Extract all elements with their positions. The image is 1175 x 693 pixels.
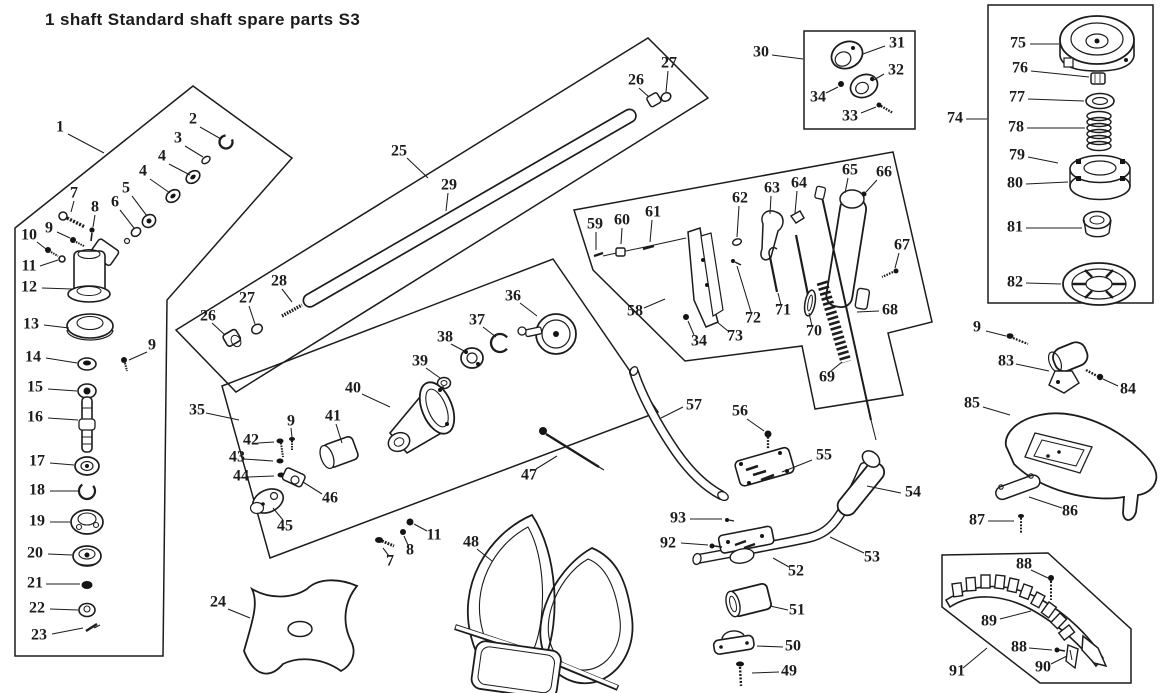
- part-label-88-101: 88: [1011, 639, 1027, 656]
- head-75-tab: [1064, 58, 1073, 67]
- part-label-33-54: 33: [842, 108, 858, 125]
- part-label-83-94: 83: [998, 353, 1014, 370]
- part-label-61-59: 61: [645, 204, 661, 221]
- leader-88-101: [1029, 648, 1052, 650]
- parts-diagram-page: 1 shaft Standard shaft spare parts S3 12…: [0, 0, 1175, 693]
- leader-28-29: [282, 289, 292, 302]
- part-label-38-36: 38: [437, 329, 453, 346]
- guard-85: [1006, 413, 1157, 520]
- joint-45-dot: [261, 502, 265, 506]
- washer-20-dot: [85, 553, 90, 558]
- part-label-71-69: 71: [775, 302, 791, 319]
- leader-47-49: [536, 456, 557, 469]
- hook-64: [791, 211, 804, 223]
- part-label-66-64: 66: [876, 164, 892, 181]
- screw-42-shaft: [281, 443, 283, 457]
- leader-5-5: [132, 196, 147, 216]
- leader-4-4: [150, 179, 170, 193]
- part-label-70-68: 70: [806, 323, 822, 340]
- leader-90-102: [1051, 656, 1067, 664]
- clamp-83-base: [1049, 371, 1079, 393]
- part-label-8-8: 8: [91, 199, 99, 216]
- screw-87-head: [1018, 514, 1024, 518]
- part-label-27-28: 27: [661, 55, 677, 72]
- part-label-49-83: 49: [781, 663, 797, 680]
- screw-56-head: [765, 431, 772, 438]
- leader-25-26: [407, 158, 428, 178]
- part-label-48-50: 48: [463, 534, 479, 551]
- bracket-52-h2: [760, 534, 764, 538]
- leader-72-70: [737, 266, 751, 312]
- part-label-51-81: 51: [789, 602, 805, 619]
- leader-49-83: [752, 672, 779, 673]
- leader-50-82: [757, 646, 783, 647]
- part-label-45-44: 45: [277, 518, 293, 535]
- part-label-76-86: 76: [1012, 60, 1028, 77]
- grip-65-cap: [840, 190, 864, 208]
- clip-90: [1066, 645, 1078, 668]
- gear-6: [130, 226, 143, 238]
- part-label-89-100: 89: [981, 613, 997, 630]
- part-label-75-85: 75: [1010, 35, 1026, 52]
- leader-88-99: [1031, 570, 1048, 578]
- pin-47-head: [539, 427, 547, 435]
- part-label-41-39: 41: [325, 408, 341, 425]
- leader-82-92: [1026, 283, 1061, 284]
- part-label-57-74: 57: [686, 397, 702, 414]
- screw-88-upper-head: [1048, 575, 1054, 581]
- leader-86-97: [1029, 497, 1062, 508]
- screw-8-shaft: [91, 233, 92, 241]
- part-label-18-18: 18: [29, 482, 45, 499]
- part-label-32-53: 32: [888, 62, 904, 79]
- part-label-56-73: 56: [732, 403, 748, 420]
- part-label-14-14: 14: [25, 349, 41, 366]
- part-label-29-32: 29: [441, 177, 457, 194]
- bearing-17-dot: [85, 464, 89, 468]
- leader-92-80: [681, 543, 708, 545]
- leader-56-73: [747, 419, 764, 431]
- leader-20-20: [48, 554, 72, 555]
- part-label-26-27: 26: [628, 72, 644, 89]
- leader-24-25: [228, 609, 250, 618]
- screw-9-right-shaft: [1013, 338, 1028, 344]
- leader-1-0: [68, 134, 104, 153]
- part-label-21-21: 21: [27, 575, 43, 592]
- clamp-50-h2: [745, 641, 749, 645]
- part-label-34-72: 34: [691, 333, 707, 350]
- rack-89-tooth-3: [981, 575, 990, 588]
- spool-notch-2: [1120, 159, 1125, 164]
- leader-53-77: [830, 537, 864, 553]
- part-label-25-26: 25: [391, 143, 407, 160]
- ball-34-throttle: [683, 314, 689, 320]
- part-label-85-96: 85: [964, 395, 980, 412]
- part-label-9-9: 9: [45, 220, 53, 237]
- part-label-10-10: 10: [21, 227, 37, 244]
- part-label-34-55: 34: [810, 89, 826, 106]
- leader-8-8: [93, 215, 95, 227]
- leader-10-10: [37, 242, 46, 249]
- leader-61-59: [650, 220, 652, 242]
- clamp-31-dot: [851, 46, 855, 50]
- washer-43: [277, 459, 284, 464]
- gearshaft-16-collar: [79, 419, 95, 430]
- leader-60-58: [621, 228, 622, 244]
- screw-9-left-head: [70, 237, 76, 243]
- leader-13-13: [44, 325, 69, 328]
- bolt-92: [710, 544, 715, 549]
- screw-49-head: [736, 662, 744, 667]
- rack-89-tooth-5: [1007, 578, 1019, 593]
- part-label-1-0: 1: [56, 119, 64, 136]
- nut-76: [1091, 73, 1105, 84]
- part-label-73-71: 73: [727, 328, 743, 345]
- throttle-assembly-box: [574, 152, 932, 409]
- part-label-24-25: 24: [210, 594, 226, 611]
- snap-ring-2: [220, 136, 233, 149]
- clutch-drum-36-knob: [518, 327, 526, 335]
- screw-49-shaft: [740, 667, 741, 686]
- ball-34-clamp: [838, 81, 844, 87]
- leader-9-9: [57, 232, 70, 238]
- clamp-32: [847, 70, 882, 102]
- pin-6: [125, 239, 130, 244]
- part-label-87-98: 87: [969, 512, 985, 529]
- part-label-60-58: 60: [614, 212, 630, 229]
- guard-85-d1: [1046, 454, 1050, 458]
- leader-80-90: [1026, 182, 1068, 184]
- gearhead-assembly-box: [15, 86, 292, 656]
- part-label-64-62: 64: [791, 175, 807, 192]
- leader-9-93: [986, 331, 1006, 336]
- nut-21: [82, 581, 93, 589]
- leader-39-37: [426, 368, 440, 378]
- cable-68-top: [815, 186, 826, 200]
- part-label-16-16: 16: [27, 409, 43, 426]
- rod-71: [770, 257, 777, 292]
- pin-62: [732, 238, 743, 247]
- rod-70: [796, 235, 808, 295]
- washer-14-core: [83, 361, 91, 366]
- washer-77: [1086, 94, 1114, 109]
- leader-40-38: [362, 394, 390, 407]
- leader-31-52: [863, 46, 885, 54]
- part-label-93-79: 93: [670, 510, 686, 527]
- clutch-drum-36-hub: [553, 331, 559, 337]
- bearing-38-d2: [476, 362, 480, 366]
- leader-22-22: [50, 609, 78, 610]
- part-label-47-49: 47: [521, 467, 537, 484]
- screw-33-shaft: [881, 106, 893, 113]
- thread-28: [282, 305, 302, 316]
- part-label-4-4: 4: [139, 163, 147, 180]
- part-label-9-93: 9: [973, 319, 981, 336]
- part-label-8-47: 8: [406, 542, 414, 559]
- pin-47-tip: [599, 467, 604, 470]
- part-label-92-80: 92: [660, 535, 676, 552]
- part-label-17-17: 17: [29, 453, 45, 470]
- part-label-15-15: 15: [27, 379, 43, 396]
- part-label-52-78: 52: [788, 563, 804, 580]
- part-label-3-2: 3: [174, 130, 182, 147]
- grip-65-latch: [855, 288, 870, 310]
- fork-46-hole: [291, 476, 299, 484]
- screw-9-right-head: [1007, 333, 1014, 339]
- screw-84-head: [1097, 374, 1103, 380]
- part-label-82-92: 82: [1007, 274, 1023, 291]
- leader-84-95: [1103, 379, 1118, 386]
- joint-45-hole: [271, 493, 278, 500]
- part-label-55-75: 55: [816, 447, 832, 464]
- pin-61: [643, 246, 654, 249]
- clamp-50-h1: [719, 645, 723, 649]
- part-label-27-30: 27: [239, 290, 255, 307]
- leader-9-24: [129, 352, 147, 360]
- screw-9-left-shaft: [76, 242, 84, 246]
- housing-40-b2: [445, 422, 449, 426]
- part-label-67-65: 67: [894, 237, 910, 254]
- leader-17-17: [50, 463, 74, 465]
- part-label-9-40: 9: [287, 413, 295, 430]
- clamp-83-dot: [1056, 380, 1060, 384]
- leader-52-78: [773, 558, 789, 567]
- circlip-37: [487, 330, 512, 355]
- part-label-79-89: 79: [1009, 147, 1025, 164]
- screw-8-head: [89, 227, 94, 232]
- part-label-86-97: 86: [1062, 503, 1078, 520]
- screw-84-shaft: [1086, 370, 1097, 376]
- part-label-81-91: 81: [1007, 219, 1023, 236]
- snap-ring-18: [76, 480, 99, 503]
- knob-81-top: [1084, 212, 1111, 229]
- fork-70: [803, 289, 817, 316]
- leader-33-54: [861, 107, 876, 113]
- leader-76-86: [1031, 71, 1089, 77]
- head-75-dot: [1095, 39, 1100, 44]
- leader-16-16: [48, 418, 78, 420]
- leader-27-28: [666, 71, 668, 92]
- screw-67-shaft: [882, 272, 893, 277]
- screw-72-head: [731, 259, 735, 263]
- leader-15-15: [48, 389, 77, 391]
- ring-11: [59, 256, 65, 262]
- leader-42-41: [258, 442, 274, 443]
- leader-46-45: [303, 482, 322, 494]
- screw-67-head: [894, 269, 899, 274]
- leader-4-3: [169, 164, 190, 175]
- leader-38-36: [451, 344, 466, 352]
- part-label-19-19: 19: [29, 513, 45, 530]
- leader-30-51: [772, 55, 803, 59]
- screw-10-head: [45, 247, 51, 253]
- screw-10-shaft: [51, 252, 58, 256]
- part-label-20-20: 20: [27, 545, 43, 562]
- blade-24: [244, 580, 357, 673]
- bolt-92-shaft: [714, 546, 722, 547]
- leader-48-50: [477, 549, 492, 561]
- pin-59: [594, 253, 603, 256]
- nut-26-upper: [646, 92, 662, 108]
- spool-notch-4: [1120, 176, 1125, 181]
- part-label-50-82: 50: [785, 638, 801, 655]
- plate-55: [734, 447, 795, 487]
- leader-83-94: [1016, 364, 1049, 371]
- part-label-43-42: 43: [229, 449, 245, 466]
- part-label-42-41: 42: [243, 432, 259, 449]
- part-label-4-3: 4: [158, 148, 166, 165]
- tube-57-outline: [634, 372, 721, 495]
- lever-63: [761, 211, 783, 260]
- leader-57-74: [661, 407, 683, 418]
- leader-79-89: [1028, 157, 1058, 163]
- part-label-13-13: 13: [23, 316, 39, 333]
- link-86: [994, 473, 1042, 501]
- part-label-53-77: 53: [864, 549, 880, 566]
- bracket-52-h1: [726, 540, 730, 544]
- spool-notch-3: [1076, 176, 1081, 181]
- leader-36-34: [520, 303, 537, 316]
- leader-43-42: [244, 459, 273, 461]
- cover-13: [67, 314, 113, 338]
- screw-72-shaft: [735, 262, 741, 265]
- part-label-30-51: 30: [753, 44, 769, 61]
- bolt-7-lower-shaft: [382, 541, 394, 546]
- part-label-58-56: 58: [627, 303, 643, 320]
- part-label-62-60: 62: [732, 190, 748, 207]
- part-label-31-52: 31: [889, 35, 905, 52]
- leader-77-87: [1028, 99, 1084, 101]
- leader-34-55: [826, 87, 838, 93]
- leader-66-64: [866, 180, 877, 192]
- screw-42-head: [277, 439, 284, 444]
- ring-11-lower: [407, 519, 414, 526]
- leader-91-103: [963, 648, 987, 668]
- nub-60: [616, 248, 625, 256]
- leader-27-30: [249, 306, 255, 324]
- exploded-parts-diagram: 1234456789101112131415161718192021222392…: [0, 0, 1175, 693]
- part-label-44-43: 44: [233, 468, 249, 485]
- leader-26-27: [639, 88, 649, 97]
- leader-58-56: [644, 299, 665, 308]
- part-label-37-35: 37: [469, 312, 485, 329]
- leader-85-96: [983, 407, 1010, 415]
- part-label-12-12: 12: [21, 279, 37, 296]
- guard-85-d2: [1057, 450, 1061, 454]
- part-label-88-99: 88: [1016, 556, 1032, 573]
- trigger-73-hole2: [705, 283, 709, 287]
- knob-81-bottom: [1086, 233, 1109, 237]
- tube-57-core: [634, 372, 721, 495]
- part-label-90-102: 90: [1035, 659, 1051, 676]
- part-label-2-1: 2: [189, 111, 197, 128]
- part-label-7-46: 7: [386, 553, 394, 570]
- head-75-d2: [1124, 58, 1128, 62]
- rack-89-end: [1082, 636, 1106, 666]
- part-label-68-66: 68: [882, 302, 898, 319]
- part-label-5-5: 5: [122, 180, 130, 197]
- leader-62-60: [737, 206, 739, 237]
- part-label-39-37: 39: [412, 353, 428, 370]
- leader-11-48: [414, 524, 427, 531]
- bolt-7-shaft: [67, 218, 85, 227]
- leader-26-31: [212, 323, 225, 335]
- part-label-40-38: 40: [345, 380, 361, 397]
- leader-68-66: [857, 311, 879, 312]
- part-label-11-48: 11: [426, 527, 441, 544]
- leader-2-1: [200, 127, 221, 139]
- part-label-69-67: 69: [819, 369, 835, 386]
- cable-68-tip: [871, 420, 876, 440]
- leader-12-12: [42, 288, 72, 289]
- bolt-88-lower-shaft: [1059, 650, 1065, 651]
- rack-89-tooth-4: [995, 575, 1005, 589]
- part-label-65-63: 65: [842, 162, 858, 179]
- part-label-77-87: 77: [1009, 89, 1025, 106]
- part-label-23-23: 23: [31, 627, 47, 644]
- part-label-22-22: 22: [29, 600, 45, 617]
- screw-9-mid-shaft: [125, 363, 127, 371]
- leader-51-81: [770, 606, 788, 610]
- part-label-11-11: 11: [21, 258, 36, 275]
- drum-19: [71, 510, 103, 534]
- plate-55-h3: [747, 481, 751, 485]
- rack-89-tooth-2: [966, 577, 976, 591]
- plate-55-h1: [739, 462, 743, 466]
- spring-78-c6: [1087, 142, 1111, 151]
- leader-64-62: [795, 191, 797, 213]
- part-label-6-6: 6: [111, 194, 119, 211]
- part-label-26-31: 26: [200, 308, 216, 325]
- rack-89-tooth-1: [952, 583, 963, 597]
- part-label-7-7: 7: [70, 185, 78, 202]
- part-label-59-57: 59: [587, 216, 603, 233]
- part-label-9-24: 9: [148, 337, 156, 354]
- leader-89-100: [1000, 611, 1031, 619]
- leader-35-33: [206, 413, 239, 420]
- spool-notch-1: [1076, 159, 1081, 164]
- part-label-84-95: 84: [1120, 381, 1136, 398]
- part-label-35-33: 35: [189, 402, 205, 419]
- leader-3-2: [185, 146, 203, 157]
- bearing-15-core: [84, 388, 91, 395]
- cap-27-lower: [250, 322, 264, 335]
- leader-11-11: [40, 260, 58, 266]
- part-label-91-103: 91: [949, 663, 965, 680]
- part-label-74-84: 74: [947, 110, 963, 127]
- trigger-73-hole1: [701, 258, 705, 262]
- housing-12-flange: [68, 286, 110, 302]
- leader-23-23: [52, 628, 83, 634]
- housing-40-b1: [438, 388, 442, 392]
- part-label-63-61: 63: [764, 180, 780, 197]
- clamp-50: [713, 635, 755, 655]
- screw-66: [862, 192, 867, 197]
- part-label-80-90: 80: [1007, 175, 1023, 192]
- plate-55-h2: [778, 451, 782, 455]
- leader-7-7: [71, 201, 74, 212]
- part-label-54-76: 54: [905, 484, 921, 501]
- part-label-78-88: 78: [1008, 119, 1024, 136]
- part-label-72-70: 72: [745, 310, 761, 327]
- leader-6-6: [120, 210, 134, 228]
- pin-93-shaft: [729, 520, 734, 521]
- clamp-83-body: [1050, 339, 1091, 374]
- gear-5-core: [147, 219, 152, 224]
- part-label-46-45: 46: [322, 490, 338, 507]
- bolt-7-head: [59, 212, 67, 220]
- screw-9-mid-head: [121, 357, 127, 363]
